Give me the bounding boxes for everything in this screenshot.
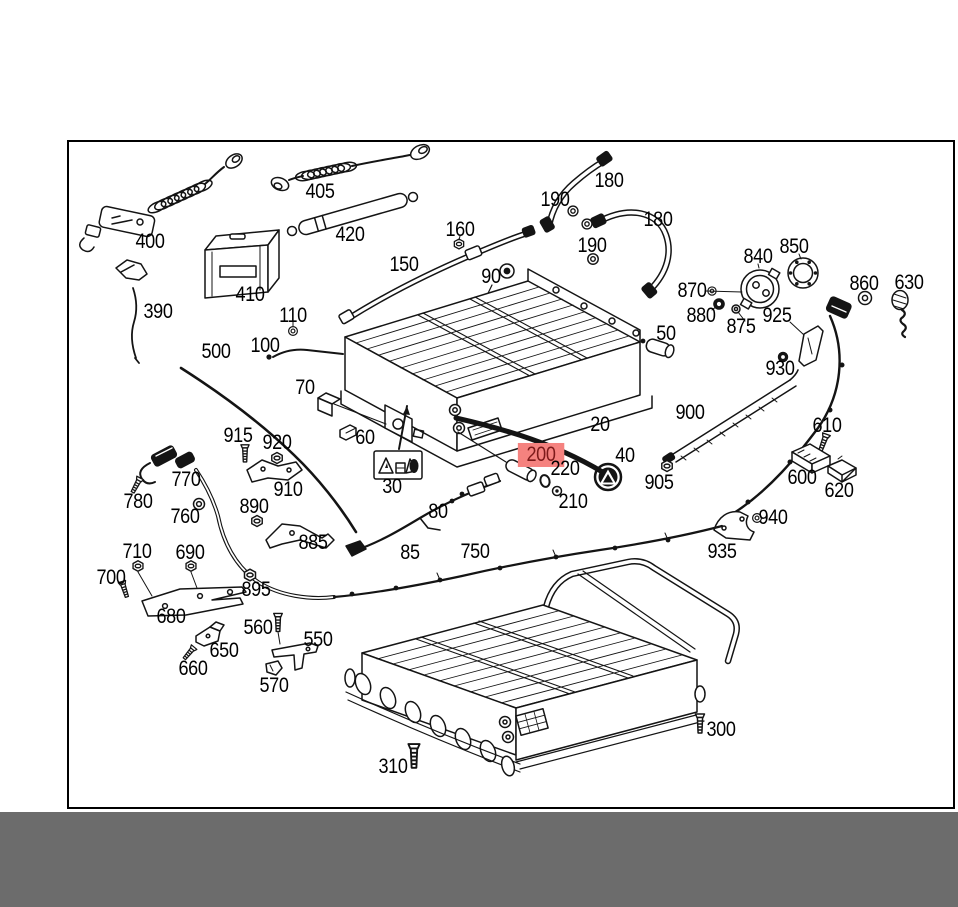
part-art-warning-roundel-40 xyxy=(595,464,621,490)
part-label-20[interactable]: 20 xyxy=(590,414,609,436)
part-art-wedge-60 xyxy=(340,425,356,440)
part-label-150[interactable]: 150 xyxy=(389,254,418,276)
part-label-100[interactable]: 100 xyxy=(250,335,279,357)
part-label-915[interactable]: 915 xyxy=(223,425,252,447)
part-label-630[interactable]: 630 xyxy=(894,272,923,294)
part-label-760[interactable]: 760 xyxy=(170,506,199,528)
part-label-700[interactable]: 700 xyxy=(96,567,125,589)
part-label-190[interactable]: 190 xyxy=(577,235,606,257)
part-label-550[interactable]: 550 xyxy=(303,629,332,651)
part-label-860[interactable]: 860 xyxy=(849,273,878,295)
part-label-600[interactable]: 600 xyxy=(787,467,816,489)
part-label-410[interactable]: 410 xyxy=(235,284,264,306)
part-label-610[interactable]: 610 xyxy=(812,415,841,437)
part-label-890[interactable]: 890 xyxy=(239,496,268,518)
part-label-850[interactable]: 850 xyxy=(779,236,808,258)
part-label-710[interactable]: 710 xyxy=(122,541,151,563)
part-art-left-cluster xyxy=(129,445,334,598)
part-label-85[interactable]: 85 xyxy=(400,542,419,564)
part-label-210[interactable]: 210 xyxy=(558,491,587,513)
part-label-560[interactable]: 560 xyxy=(243,617,272,639)
part-label-905[interactable]: 905 xyxy=(644,472,673,494)
diagram-artwork xyxy=(0,0,958,907)
part-label-620[interactable]: 620 xyxy=(824,480,853,502)
part-label-420[interactable]: 420 xyxy=(335,224,364,246)
part-label-80[interactable]: 80 xyxy=(428,501,447,523)
part-label-500[interactable]: 500 xyxy=(201,341,230,363)
part-art-charge-port-840-850 xyxy=(706,254,908,366)
part-label-880[interactable]: 880 xyxy=(686,305,715,327)
part-art-charge-cable-405 xyxy=(269,142,431,193)
part-label-940[interactable]: 940 xyxy=(758,507,787,529)
part-label-400[interactable]: 400 xyxy=(135,231,164,253)
part-art-harness-750 xyxy=(334,526,722,597)
part-label-650[interactable]: 650 xyxy=(209,640,238,662)
part-label-70[interactable]: 70 xyxy=(295,377,314,399)
part-label-690[interactable]: 690 xyxy=(175,542,204,564)
part-label-920[interactable]: 920 xyxy=(262,432,291,454)
part-label-180[interactable]: 180 xyxy=(643,209,672,231)
part-label-660[interactable]: 660 xyxy=(178,658,207,680)
part-label-390[interactable]: 390 xyxy=(143,301,172,323)
part-label-840[interactable]: 840 xyxy=(743,246,772,268)
part-label-220[interactable]: 220 xyxy=(550,458,579,480)
part-label-885[interactable]: 885 xyxy=(298,532,327,554)
part-art-seal-220 xyxy=(539,474,551,488)
part-label-60[interactable]: 60 xyxy=(355,427,374,449)
part-label-935[interactable]: 935 xyxy=(707,541,736,563)
part-label-40[interactable]: 40 xyxy=(615,445,634,467)
page: 4004054104203901601509011010050018019018… xyxy=(0,0,958,907)
part-label-895[interactable]: 895 xyxy=(241,579,270,601)
part-art-hook-390 xyxy=(116,260,147,363)
part-label-90[interactable]: 90 xyxy=(481,266,500,288)
part-label-110[interactable]: 110 xyxy=(279,305,307,327)
part-label-930[interactable]: 930 xyxy=(765,358,794,380)
part-label-405[interactable]: 405 xyxy=(305,181,334,203)
part-label-870[interactable]: 870 xyxy=(677,280,706,302)
parts-line-art xyxy=(0,0,958,907)
part-label-910[interactable]: 910 xyxy=(273,479,302,501)
part-label-925[interactable]: 925 xyxy=(762,305,791,327)
part-label-770[interactable]: 770 xyxy=(171,469,200,491)
part-label-780[interactable]: 780 xyxy=(123,491,152,513)
part-label-310[interactable]: 310 xyxy=(378,756,407,778)
part-label-190[interactable]: 190 xyxy=(540,189,569,211)
part-label-160[interactable]: 160 xyxy=(445,219,474,241)
part-label-900[interactable]: 900 xyxy=(675,402,704,424)
part-label-30[interactable]: 30 xyxy=(382,476,401,498)
part-art-battery-lower xyxy=(345,561,737,777)
part-label-50[interactable]: 50 xyxy=(656,323,675,345)
footer-bar: MERCEDES-BENZ - a2423400801 N - 200 xyxy=(0,812,958,907)
part-label-680[interactable]: 680 xyxy=(156,606,185,628)
part-label-300[interactable]: 300 xyxy=(706,719,735,741)
part-label-750[interactable]: 750 xyxy=(460,541,489,563)
part-label-875[interactable]: 875 xyxy=(726,316,755,338)
part-label-570[interactable]: 570 xyxy=(259,675,288,697)
part-label-180[interactable]: 180 xyxy=(594,170,623,192)
